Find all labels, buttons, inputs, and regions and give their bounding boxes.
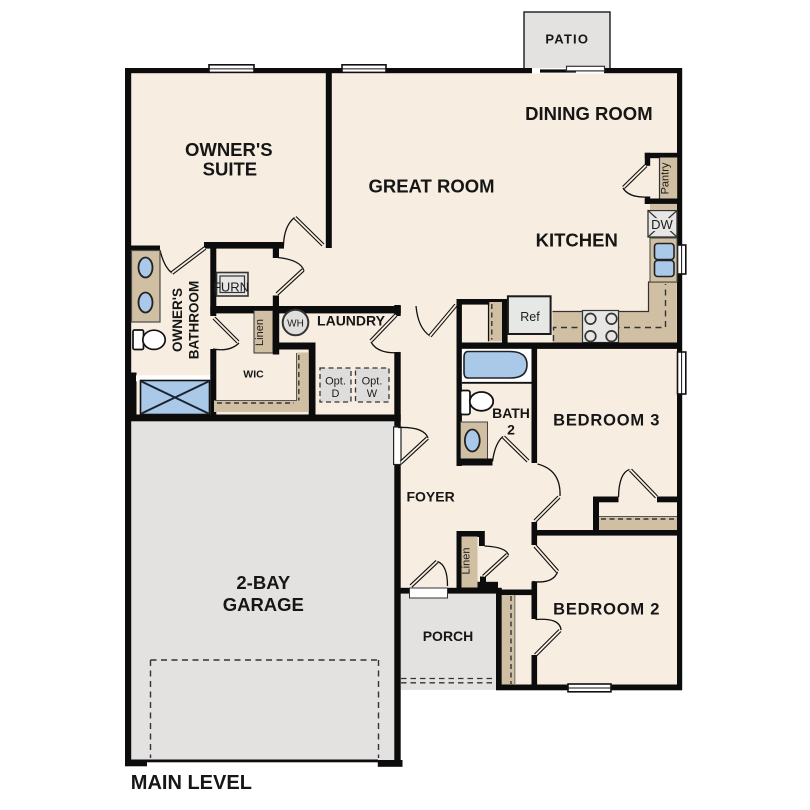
svg-text:Linen: Linen [461, 548, 473, 575]
svg-text:BATH: BATH [492, 405, 530, 421]
svg-text:2-BAY: 2-BAY [236, 572, 290, 593]
svg-text:OWNER'S: OWNER'S [170, 288, 185, 352]
svg-text:Linen: Linen [254, 319, 266, 346]
svg-text:GREAT ROOM: GREAT ROOM [368, 176, 494, 197]
svg-text:PATIO: PATIO [545, 32, 589, 47]
svg-text:LAUNDRY: LAUNDRY [317, 313, 386, 329]
svg-text:D: D [332, 388, 340, 400]
svg-text:GARAGE: GARAGE [223, 594, 304, 615]
svg-text:W: W [367, 388, 378, 400]
svg-text:DW: DW [651, 217, 673, 232]
svg-text:BATHROOM: BATHROOM [186, 281, 201, 360]
svg-text:Ref: Ref [520, 310, 540, 324]
svg-text:MAIN LEVEL: MAIN LEVEL [131, 772, 252, 794]
svg-text:KITCHEN: KITCHEN [536, 230, 618, 251]
svg-text:WIC: WIC [243, 369, 264, 381]
svg-text:BEDROOM 2: BEDROOM 2 [553, 600, 660, 618]
svg-text:WH: WH [287, 319, 304, 330]
svg-text:FOYER: FOYER [406, 489, 454, 505]
svg-text:Opt.: Opt. [325, 376, 346, 388]
svg-text:DINING ROOM: DINING ROOM [525, 103, 652, 124]
svg-text:Pantry: Pantry [659, 162, 671, 194]
svg-text:PORCH: PORCH [423, 628, 474, 644]
svg-text:SUITE: SUITE [203, 158, 257, 179]
svg-text:FURN: FURN [213, 280, 249, 295]
svg-text:Opt.: Opt. [362, 376, 383, 388]
svg-text:OWNER'S: OWNER'S [185, 139, 273, 160]
svg-text:2: 2 [507, 422, 515, 438]
svg-text:BEDROOM 3: BEDROOM 3 [553, 411, 660, 429]
